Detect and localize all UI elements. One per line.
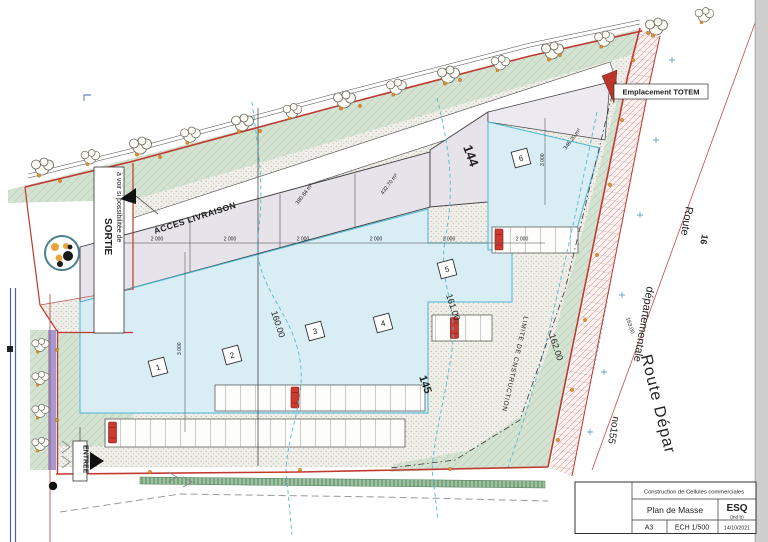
bay-dim: 2 000 (151, 237, 164, 243)
car-icon (495, 229, 503, 250)
road-name-red: Route (678, 205, 695, 236)
cell-marker: 2 (222, 345, 242, 365)
road-name-black: Route Dépar (637, 353, 678, 456)
works-dashed-lines (60, 494, 548, 512)
phase-label: ESQ (726, 503, 747, 514)
left-purple-band (48, 330, 56, 470)
phase-index: (ind b) (730, 515, 744, 521)
title-block: Construction de Cellules commerciales Pl… (575, 482, 756, 534)
sortie-note-text: à voir si possibilitée de (115, 172, 122, 243)
totem-label: Emplacement TOTEM (623, 88, 700, 97)
contour-label: 163.00 (624, 317, 635, 335)
bay-dim: 2 000 (443, 237, 456, 243)
paper-size: A3 (645, 525, 654, 532)
cell-marker: 4 (373, 313, 393, 333)
road-name-red: no155 (605, 415, 621, 445)
road-name-labels: Route départementale no155 16 Route Dépa… (605, 205, 710, 455)
car-icon (109, 422, 117, 443)
bay-dim: 2 000 (516, 237, 529, 243)
bay-dim: 2 000 (224, 237, 237, 243)
date-label: 14/10/2021 (724, 526, 750, 532)
site-plan-sheet: 1 2 3 4 5 6 2 000 2 000 2 000 2 000 2 00… (0, 0, 768, 542)
bay-dim: 2 000 (370, 237, 383, 243)
bottom-hedge (140, 477, 545, 488)
cell-marker: 6 (511, 148, 531, 168)
drawing-title: Plan de Masse (647, 505, 703, 515)
car-icon (291, 387, 299, 408)
sortie-label: SORTIE (102, 218, 113, 256)
plan-de-masse-drawing: 1 2 3 4 5 6 2 000 2 000 2 000 2 000 2 00… (0, 0, 768, 542)
depth-dim: 3 000 (177, 342, 183, 355)
road-ref-green: 16 (698, 234, 710, 246)
cell-marker: 3 (305, 321, 325, 341)
landscape-circle (45, 236, 79, 270)
scale-label: ECH 1/500 (675, 525, 709, 532)
cell-marker: 5 (437, 259, 457, 279)
depth-dim: 3 000 (540, 153, 546, 166)
cell-marker: 1 (148, 357, 168, 377)
bay-dim: 2 000 (297, 237, 310, 243)
scan-edge (755, 0, 768, 542)
entree-label: ENTREE (82, 445, 89, 474)
road-name-red: départementale (631, 285, 656, 362)
project-title: Construction de Cellules commerciales (644, 490, 744, 496)
